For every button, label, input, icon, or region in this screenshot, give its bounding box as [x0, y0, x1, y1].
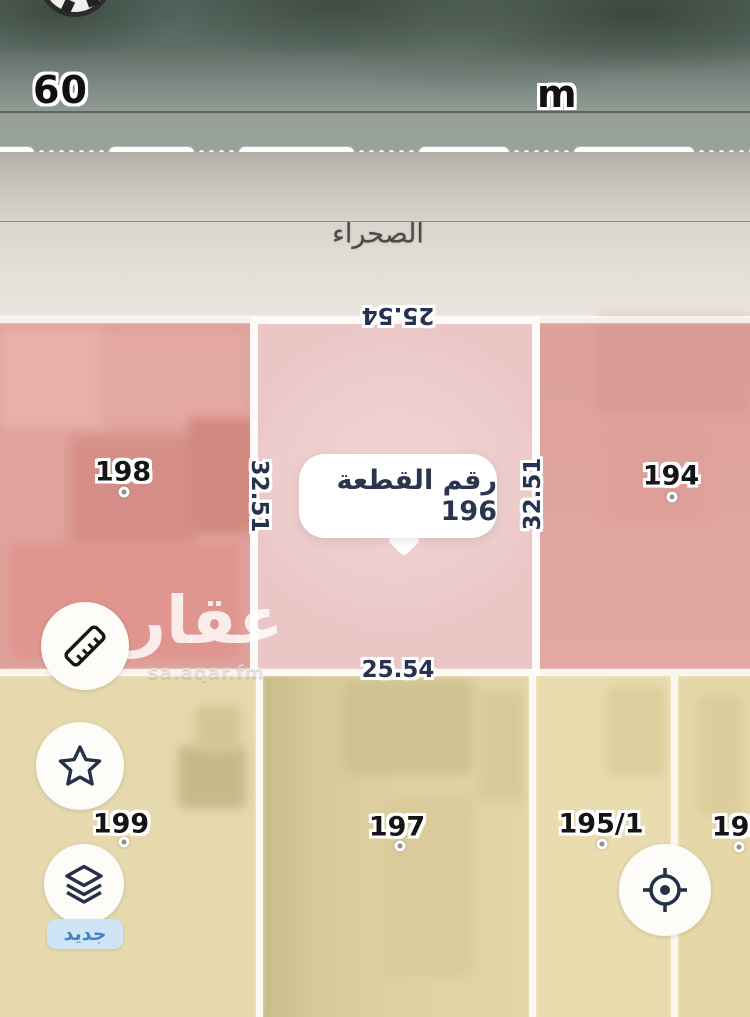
plot-199-marker	[119, 837, 130, 848]
plot-195-2-marker	[734, 842, 745, 853]
layers-icon	[59, 859, 109, 909]
favorites-button[interactable]	[36, 722, 124, 810]
parcel-border-199-197	[256, 676, 263, 1017]
star-icon	[54, 740, 106, 792]
plot-195-1-marker	[597, 839, 608, 850]
street-width-label: 60	[33, 68, 88, 112]
plot-195-2-label: 195/	[712, 812, 750, 843]
locate-button[interactable]	[619, 844, 711, 936]
plot-198-marker	[119, 487, 130, 498]
new-badge: جديد	[47, 919, 123, 949]
measure-button[interactable]	[41, 602, 129, 690]
dimension-top: 25.54	[362, 302, 435, 328]
plot-197-label: 197	[369, 812, 425, 843]
plot-194-marker	[667, 492, 678, 503]
plot-number-bubble: رقم القطعة 196	[299, 454, 497, 538]
watermark-domain: sa.aqar.fm	[148, 662, 265, 683]
road-edge-line-top	[0, 111, 750, 113]
locate-icon	[637, 862, 693, 918]
dimension-bottom: 25.54	[362, 657, 435, 683]
street-name-label: الصحراء	[332, 219, 424, 250]
parcel-border-197-195	[529, 676, 536, 1017]
dimension-left: 32.51	[246, 460, 272, 533]
satellite-area	[0, 0, 750, 152]
dimension-right: 32.51	[520, 458, 546, 531]
road-surface	[0, 152, 750, 222]
map-view[interactable]: 60 m الصحراء 198 194 199 197 195/1	[0, 0, 750, 1017]
new-badge-text: جديد	[64, 923, 107, 945]
plot-number-bubble-text: رقم القطعة 196	[299, 465, 497, 527]
street-unit-label: m	[537, 72, 578, 116]
plot-194[interactable]	[536, 318, 750, 670]
layers-button[interactable]	[44, 844, 124, 924]
plot-199-label: 199	[93, 809, 149, 840]
plot-198-label: 198	[95, 457, 151, 488]
ruler-icon	[58, 619, 112, 673]
plot-195-1-label: 195/1	[558, 809, 643, 840]
watermark-brand: عقار	[128, 588, 283, 654]
plot-197-marker	[395, 841, 406, 852]
plot-194-label: 194	[643, 461, 699, 492]
plot-199[interactable]	[0, 676, 257, 1017]
